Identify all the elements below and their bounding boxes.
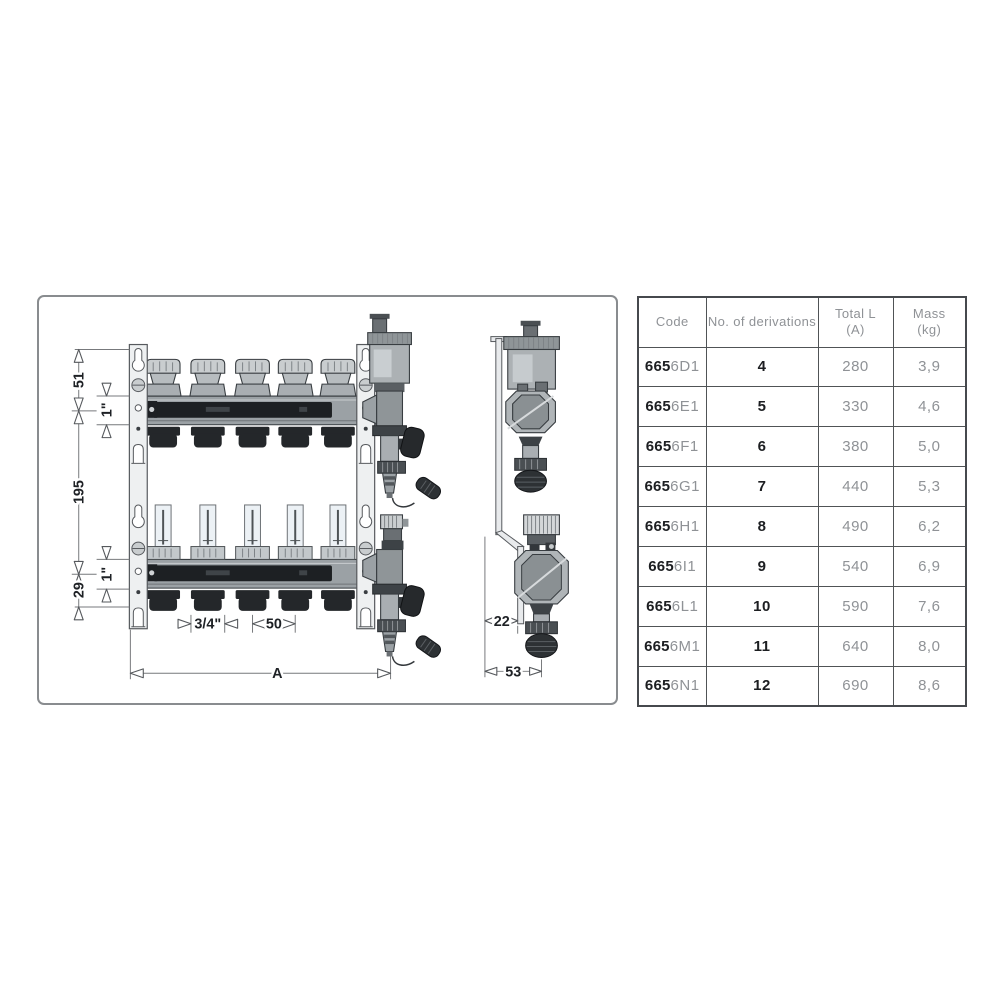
table-row: 6656N1 12 690 8,6 <box>638 666 966 706</box>
dim-outlet-size: 3/4" <box>194 617 221 633</box>
table-row: 6656H1 8 490 6,2 <box>638 507 966 547</box>
derivations-cell: 4 <box>706 347 818 387</box>
mass-cell: 8,0 <box>893 626 966 666</box>
derivations-cell: 7 <box>706 467 818 507</box>
mass-cell: 3,9 <box>893 347 966 387</box>
derivations-cell: 9 <box>706 546 818 586</box>
table-row: 6656E1 5 330 4,6 <box>638 387 966 427</box>
derivations-cell: 10 <box>706 586 818 626</box>
derivations-cell: 6 <box>706 427 818 467</box>
total-l-cell: 590 <box>818 586 893 626</box>
table-row: 6656F1 6 380 5,0 <box>638 427 966 467</box>
derivations-cell: 11 <box>706 626 818 666</box>
code-cell: 6656H1 <box>638 507 706 547</box>
dim-outlet-pitch: 50 <box>266 617 282 633</box>
table-row: 6656G1 7 440 5,3 <box>638 467 966 507</box>
mass-cell: 7,6 <box>893 586 966 626</box>
datasheet-page: 51 1" 195 29 1" 3/4" <box>0 0 1000 1000</box>
code-cell: 6656G1 <box>638 467 706 507</box>
code-cell: 6656E1 <box>638 387 706 427</box>
manifold-technical-drawing: 51 1" 195 29 1" 3/4" <box>39 297 616 703</box>
mass-cell: 4,6 <box>893 387 966 427</box>
mass-cell: 5,0 <box>893 427 966 467</box>
side-bottom-valve <box>515 515 569 658</box>
code-cell: 6656I1 <box>638 546 706 586</box>
total-l-cell: 490 <box>818 507 893 547</box>
col-header-code: Code <box>638 297 706 347</box>
wall-bracket-left <box>129 345 147 629</box>
code-cell: 6656N1 <box>638 666 706 706</box>
code-cell: 6656L1 <box>638 586 706 626</box>
spec-table: Code No. of derivations Total L(A) Mass(… <box>637 296 967 707</box>
dim-bracket-top-to-axis: 51 <box>72 372 88 388</box>
col-header-mass: Mass(kg) <box>893 297 966 347</box>
mass-cell: 6,2 <box>893 507 966 547</box>
air-vent <box>368 314 412 392</box>
total-l-cell: 280 <box>818 347 893 387</box>
code-cell: 6656D1 <box>638 347 706 387</box>
dim-top-manifold-size: 1" <box>99 403 115 418</box>
col-header-total-l: Total L(A) <box>818 297 893 347</box>
front-view: 51 1" 195 29 1" 3/4" <box>72 314 443 682</box>
table-row: 6656I1 9 540 6,9 <box>638 546 966 586</box>
code-cell: 6656F1 <box>638 427 706 467</box>
table-row: 6656D1 4 280 3,9 <box>638 347 966 387</box>
dim-axis-spacing: 195 <box>72 480 88 504</box>
derivations-cell: 8 <box>706 507 818 547</box>
total-l-cell: 330 <box>818 387 893 427</box>
derivations-cell: 12 <box>706 666 818 706</box>
dim-bracket-offset: 22 <box>494 614 510 630</box>
side-top-valve <box>504 321 560 492</box>
dim-total-length: A <box>272 666 282 682</box>
wall-bracket-right <box>357 345 375 629</box>
dimension-lines-bottom: 3/4" 50 A <box>130 615 390 682</box>
dimension-lines-left: 51 1" 195 29 1" <box>72 349 130 619</box>
code-cell: 6656M1 <box>638 626 706 666</box>
table-header-row: Code No. of derivations Total L(A) Mass(… <box>638 297 966 347</box>
side-view: 22 53 <box>485 321 568 680</box>
mass-cell: 6,9 <box>893 546 966 586</box>
table-row: 6656M1 11 640 8,0 <box>638 626 966 666</box>
total-l-cell: 380 <box>818 427 893 467</box>
mass-cell: 5,3 <box>893 467 966 507</box>
dim-depth: 53 <box>505 664 521 680</box>
total-l-cell: 440 <box>818 467 893 507</box>
dim-axis-to-base: 29 <box>72 582 88 598</box>
total-l-cell: 640 <box>818 626 893 666</box>
total-l-cell: 540 <box>818 546 893 586</box>
dim-bottom-manifold-size: 1" <box>99 567 115 582</box>
mass-cell: 8,6 <box>893 666 966 706</box>
total-l-cell: 690 <box>818 666 893 706</box>
derivations-cell: 5 <box>706 387 818 427</box>
table-row: 6656L1 10 590 7,6 <box>638 586 966 626</box>
col-header-derivations: No. of derivations <box>706 297 818 347</box>
technical-drawing-panel: 51 1" 195 29 1" 3/4" <box>37 295 618 705</box>
